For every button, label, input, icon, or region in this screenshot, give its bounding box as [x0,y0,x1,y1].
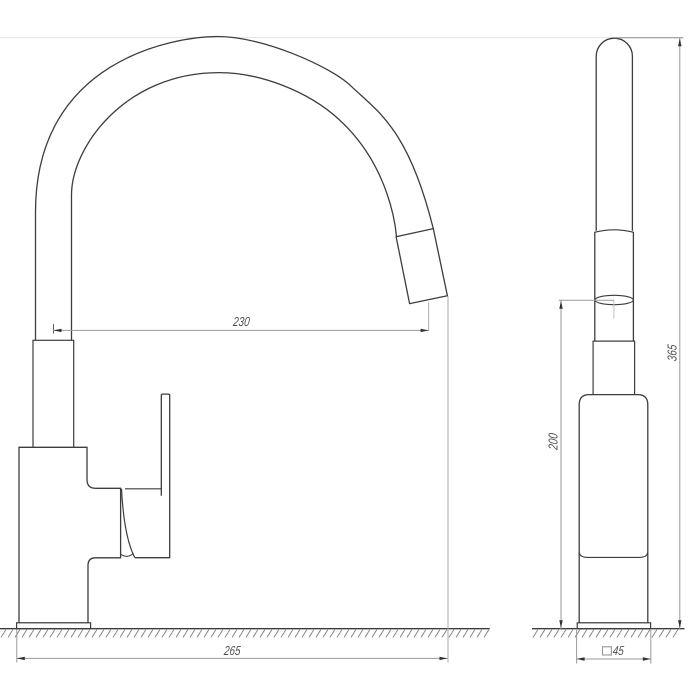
svg-text:365: 365 [664,343,679,362]
svg-text:45: 45 [612,643,625,658]
svg-text:230: 230 [232,314,251,329]
svg-text:200: 200 [546,432,561,451]
svg-text:265: 265 [223,643,242,658]
